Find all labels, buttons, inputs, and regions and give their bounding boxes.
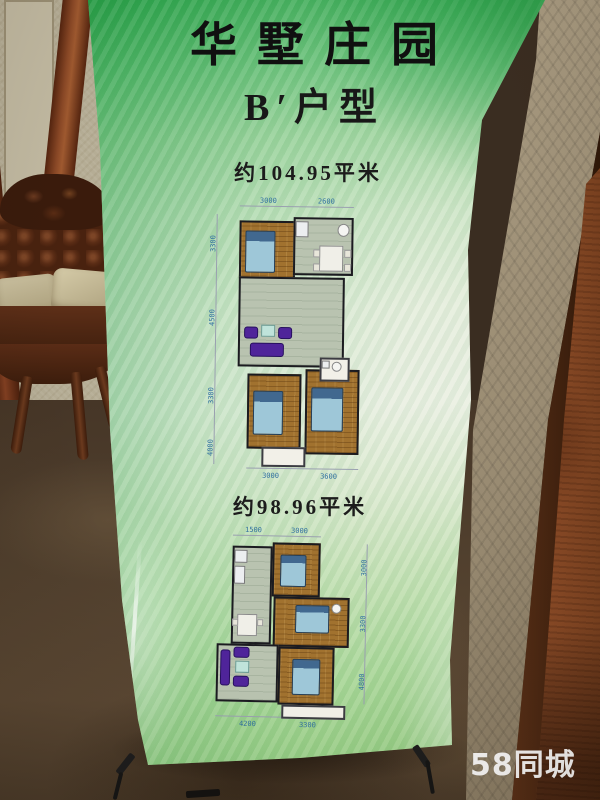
area-label-plan-2: 约98.96平米 <box>110 491 490 521</box>
dining-chair <box>344 250 351 258</box>
dimension-label: 4800 <box>358 672 366 690</box>
fridge <box>234 550 247 563</box>
basin <box>322 361 330 369</box>
room-balcony <box>281 705 345 720</box>
armchair <box>233 676 249 687</box>
bed <box>245 230 276 272</box>
armchair <box>233 647 249 658</box>
bed <box>253 391 284 435</box>
dining-chair <box>313 249 320 257</box>
bed <box>295 605 330 634</box>
dimension-label: 4200 <box>239 720 257 728</box>
dining-chair <box>257 619 263 626</box>
dining-chair <box>344 264 351 272</box>
chair-leg <box>70 372 89 461</box>
banner-title: 华墅庄园 <box>96 6 532 75</box>
dining-chair <box>313 263 320 271</box>
dining-table <box>237 614 257 636</box>
bed <box>280 555 307 588</box>
photo-scene: 华墅庄园 B′户型 约104.95平米 30002600330045003300… <box>0 0 600 800</box>
chair-carved-crest <box>0 174 112 230</box>
sofa <box>250 343 284 357</box>
toilet <box>332 362 342 372</box>
sink <box>337 224 349 237</box>
dining-chair <box>232 619 238 626</box>
floor-plan-1: 30002600330045003300400030003600 <box>202 194 366 488</box>
counter <box>234 566 245 584</box>
coffee-table <box>235 661 249 673</box>
armchair <box>244 326 258 338</box>
banner-subtitle: B′户型 <box>96 76 532 131</box>
sofa <box>220 649 231 685</box>
dimension-label: 3300 <box>209 234 217 252</box>
dimension-label: 3000 <box>360 558 368 576</box>
bed <box>292 659 321 696</box>
armchair <box>278 327 292 339</box>
floor-plan-2: 1500300030003300480042003300 <box>205 525 394 734</box>
dimension-line <box>240 205 354 208</box>
site-watermark: 58同城 <box>470 740 576 784</box>
dimension-label: 4500 <box>208 308 216 326</box>
area-label-plan-1: 约104.95平米 <box>118 157 498 187</box>
dimension-label: 1500 <box>245 526 263 534</box>
chair-leg <box>10 376 33 455</box>
dimension-label: 2600 <box>318 197 336 205</box>
room-balcony <box>261 447 305 468</box>
coffee-table <box>261 325 275 337</box>
dining-table <box>319 245 343 271</box>
dimension-label: 3300 <box>299 721 317 729</box>
dimension-label: 3000 <box>291 527 309 535</box>
dimension-line <box>246 467 358 470</box>
bed <box>311 387 344 431</box>
dimension-label: 4000 <box>206 438 214 456</box>
dimension-label: 3600 <box>320 473 338 481</box>
dimension-label: 3300 <box>207 386 215 404</box>
dimension-label: 3000 <box>260 197 278 205</box>
dimension-label: 3300 <box>359 614 367 632</box>
fridge <box>295 221 308 237</box>
dimension-label: 3000 <box>262 472 280 480</box>
